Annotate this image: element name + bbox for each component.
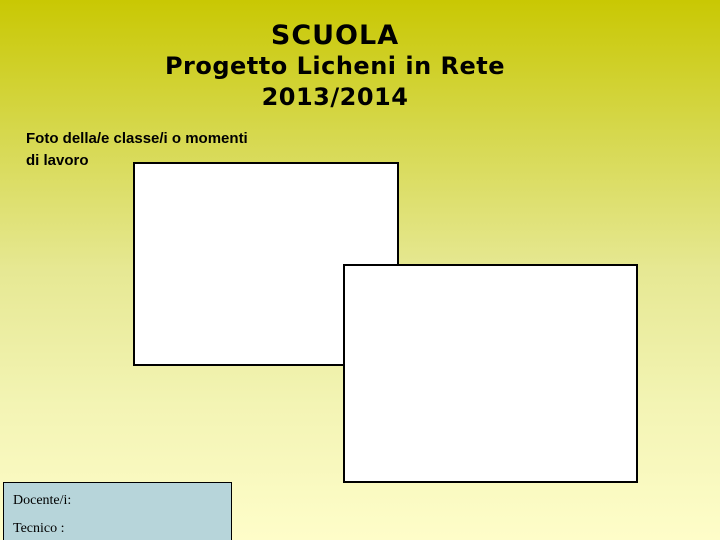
photo-placeholder-2	[343, 264, 638, 483]
slide-subtitle-line-1: Progetto Licheni in Rete	[0, 51, 670, 82]
slide-title-block: SCUOLA Progetto Licheni in Rete 2013/201…	[0, 20, 670, 113]
info-line-tecnico: Tecnico :	[13, 515, 231, 540]
info-line-docente: Docente/i:	[13, 487, 231, 515]
slide-subtitle-line-2: 2013/2014	[0, 82, 670, 113]
slide-title: SCUOLA	[0, 20, 670, 51]
presentation-slide: SCUOLA Progetto Licheni in Rete 2013/201…	[0, 0, 720, 540]
photo-caption-line-1: Foto della/e classe/i o momenti	[26, 128, 248, 150]
info-box: Docente/i: Tecnico :	[3, 482, 232, 540]
